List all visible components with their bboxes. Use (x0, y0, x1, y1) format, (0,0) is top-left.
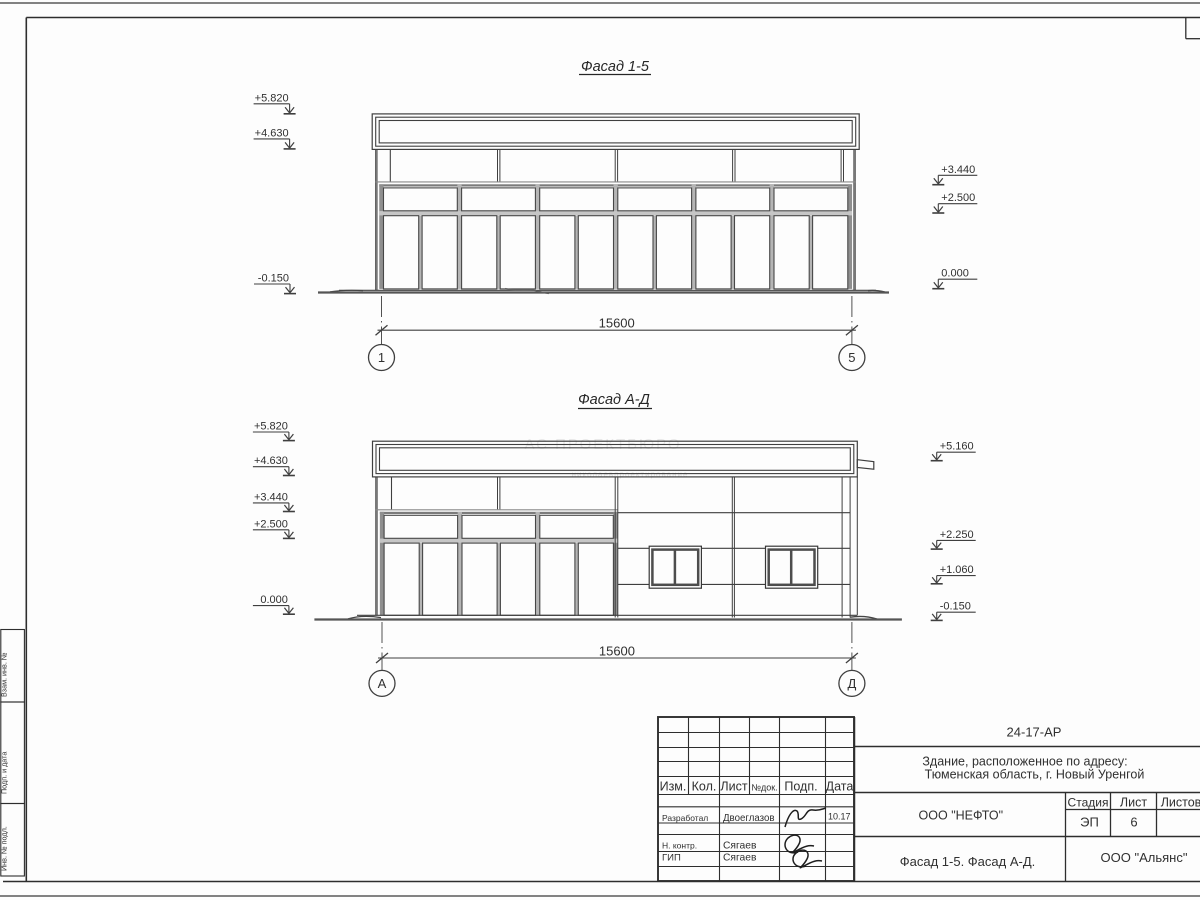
svg-text:Фасад А-Д: Фасад А-Д (578, 392, 650, 408)
svg-text:+2.250: +2.250 (940, 529, 974, 541)
svg-text:+3.440: +3.440 (941, 164, 975, 176)
svg-text:Д: Д (847, 676, 856, 691)
svg-text:10.17: 10.17 (828, 812, 851, 822)
svg-text:Сягаев: Сягаев (723, 840, 757, 851)
svg-text:А: А (378, 676, 387, 691)
svg-text:+1.060: +1.060 (940, 564, 974, 576)
svg-text:ООО "Альянс": ООО "Альянс" (1101, 850, 1188, 865)
svg-text:ООО "НЕФТО": ООО "НЕФТО" (919, 809, 1003, 823)
svg-text:Стадия: Стадия (1068, 795, 1109, 809)
svg-text:Двоеглазов: Двоеглазов (723, 813, 775, 824)
svg-text:+5.820: +5.820 (255, 92, 289, 104)
svg-text:Лист: Лист (1120, 795, 1147, 809)
svg-text:Тюменская область, г. Новый Ур: Тюменская область, г. Новый Уренгой (925, 767, 1145, 781)
svg-text:-0.150: -0.150 (940, 601, 971, 613)
svg-text:0.000: 0.000 (260, 594, 288, 606)
svg-text:+2.500: +2.500 (254, 518, 288, 530)
svg-text:6: 6 (1130, 815, 1137, 830)
svg-text:+5.160: +5.160 (940, 441, 974, 453)
svg-text:Листов: Листов (1161, 795, 1200, 809)
svg-text:-0.150: -0.150 (258, 273, 289, 285)
svg-text:Сягаев: Сягаев (723, 853, 757, 864)
svg-text:0.000: 0.000 (941, 268, 969, 280)
svg-text:15600: 15600 (599, 316, 635, 331)
svg-text:Кол.: Кол. (692, 779, 717, 793)
svg-text:24-17-АР: 24-17-АР (1007, 724, 1062, 739)
svg-text:+2.500: +2.500 (941, 192, 975, 204)
svg-text:15600: 15600 (599, 643, 635, 658)
svg-text:Фасад 1-5. Фасад А-Д.: Фасад 1-5. Фасад А-Д. (900, 854, 1036, 869)
svg-text:николаевпроектирование: николаевпроектирование (572, 470, 689, 479)
svg-text:Дата: Дата (826, 779, 854, 793)
svg-text:ЭП: ЭП (1080, 815, 1099, 830)
svg-text:+5.820: +5.820 (254, 421, 288, 433)
svg-text:Н. контр.: Н. контр. (662, 840, 697, 850)
svg-text:1: 1 (378, 350, 385, 365)
svg-text:№док.: №док. (751, 782, 777, 792)
svg-text:+4.630: +4.630 (254, 455, 288, 467)
svg-text:Фасад 1-5: Фасад 1-5 (581, 59, 650, 75)
svg-text:+3.440: +3.440 (254, 491, 288, 503)
svg-text:5: 5 (848, 350, 855, 365)
svg-text:ГИП: ГИП (662, 853, 681, 864)
svg-text:Изм.: Изм. (660, 779, 687, 793)
svg-text:Лист: Лист (720, 779, 747, 793)
svg-text:Инв. № подл.: Инв. № подл. (0, 826, 9, 871)
svg-text:Подп.: Подп. (784, 779, 817, 793)
svg-text:Разработал: Разработал (662, 813, 708, 823)
svg-text:Взам. инв. №: Взам. инв. № (0, 652, 9, 697)
svg-text:Подп. и дата: Подп. и дата (0, 752, 9, 794)
svg-text:+4.630: +4.630 (255, 127, 289, 139)
